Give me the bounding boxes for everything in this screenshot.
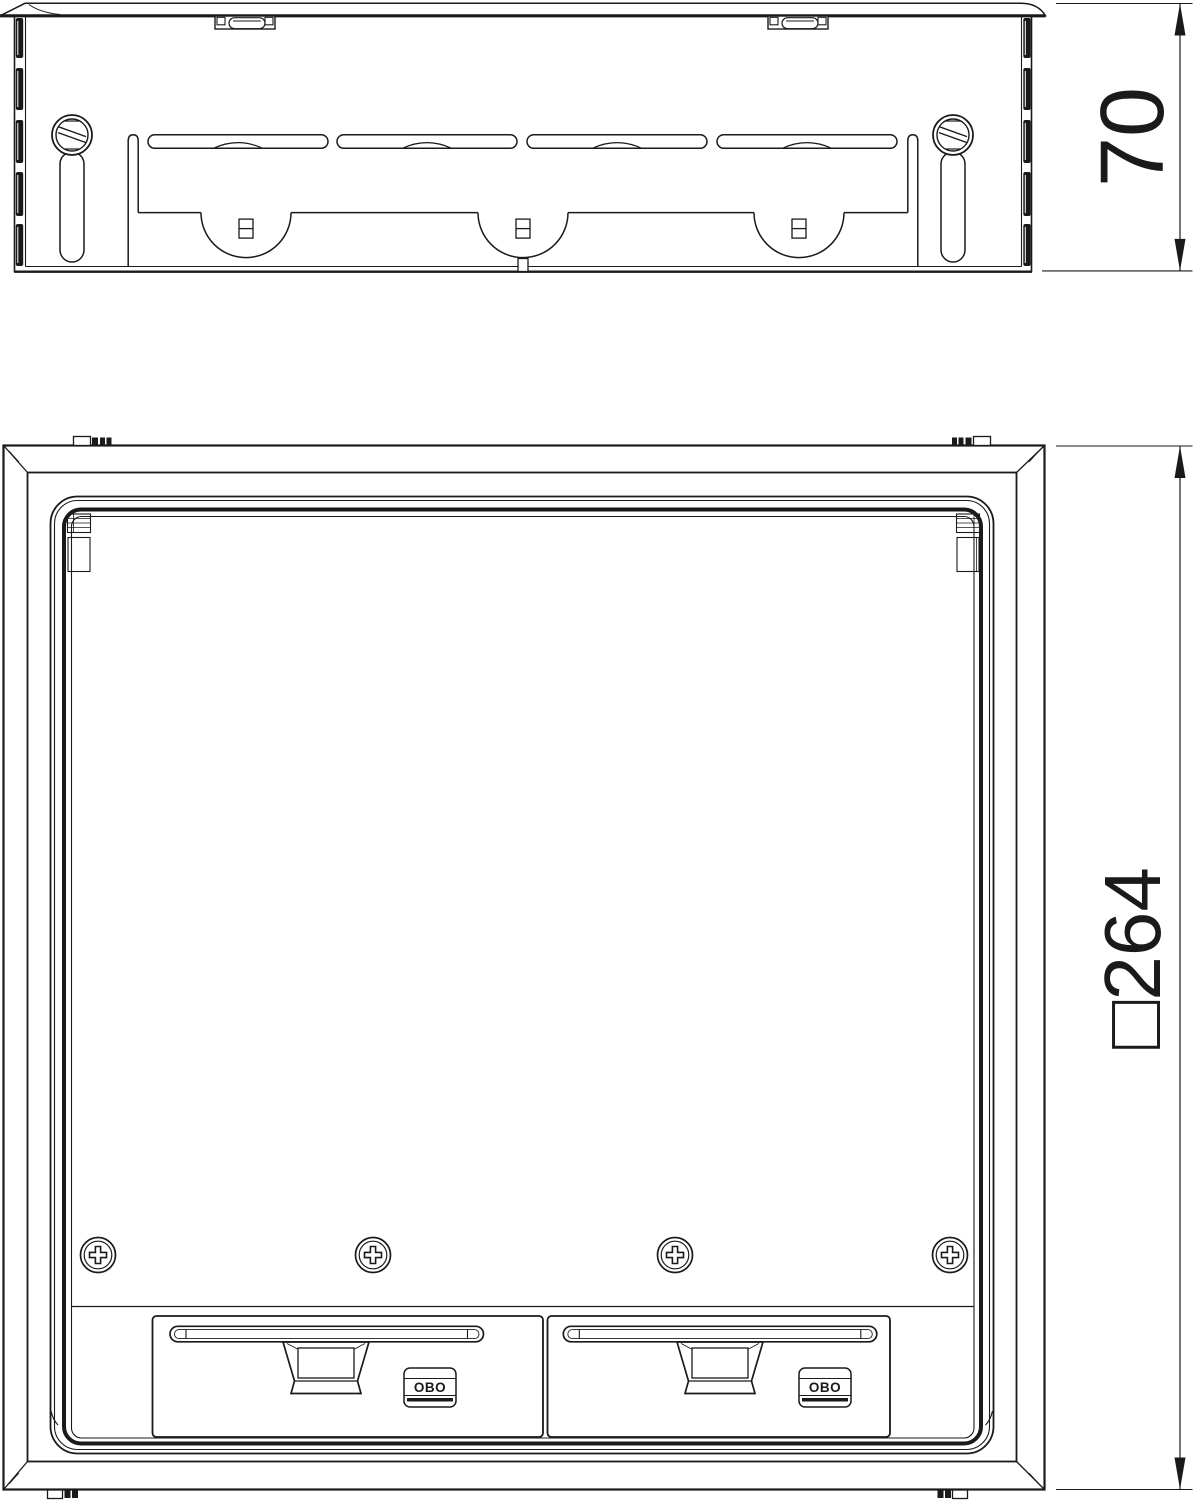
plan-cover-screw-1: [81, 1238, 116, 1273]
flap-left-handle: [283, 1342, 369, 1394]
side-floor-pocket-3: [754, 213, 844, 258]
plan-cover-screw-2: [356, 1238, 391, 1273]
plan-inner-frame: [28, 473, 1017, 1462]
technical-drawing-page: OBO: [0, 0, 1197, 1500]
dimension-label-70: 70: [1083, 87, 1183, 187]
side-floor-pocket-2: [478, 213, 568, 258]
side-levelling-screw-right: [933, 115, 973, 262]
plan-edge-tab-top-left: [74, 437, 112, 446]
plan-edge-tab-bottom-left: [48, 1490, 79, 1499]
side-left-wall-notches: [16, 18, 23, 266]
plan-cover-lid: [51, 497, 994, 1454]
side-levelling-screw-left: [52, 115, 92, 262]
dimension-label-264: □264: [1088, 867, 1177, 1049]
side-lid-plate: [0, 3, 1046, 16]
flap-right-obo-plate: [799, 1368, 851, 1407]
plan-cover-screw-3: [658, 1238, 693, 1273]
side-device-tray: [128, 135, 918, 267]
plan-hinge-detail-right: [957, 514, 980, 572]
flap-left-obo-plate: [404, 1368, 456, 1407]
side-wall-slots: [148, 135, 897, 149]
plan-outlet-flap-right: [548, 1316, 891, 1437]
plan-edge-tab-top-right: [952, 437, 991, 446]
side-left-wall: [15, 16, 26, 272]
plan-outlet-flap-left: [153, 1316, 544, 1437]
plan-edge-tab-bottom-right: [938, 1490, 968, 1499]
side-floor-pocket-1: [201, 213, 291, 258]
flap-left-grip-slot: [170, 1326, 484, 1342]
floor-box-drawing: OBO: [0, 0, 1197, 1500]
plan-cover-screw-4: [933, 1238, 968, 1273]
plan-lid-seam: [64, 510, 981, 1444]
side-view: [0, 3, 1046, 272]
dimension-height-70: 70: [1042, 4, 1193, 271]
flap-right-handle: [677, 1342, 763, 1394]
dimension-square-264: □264: [1056, 446, 1193, 1490]
side-right-wall-notches: [1023, 18, 1030, 266]
plan-view: [4, 437, 1045, 1499]
side-latch-tab-left: [215, 16, 275, 29]
side-right-wall: [1022, 16, 1032, 272]
side-bottom-notch: [518, 259, 528, 272]
flap-right-grip-slot: [563, 1326, 877, 1342]
side-latch-tab-right: [768, 16, 828, 29]
